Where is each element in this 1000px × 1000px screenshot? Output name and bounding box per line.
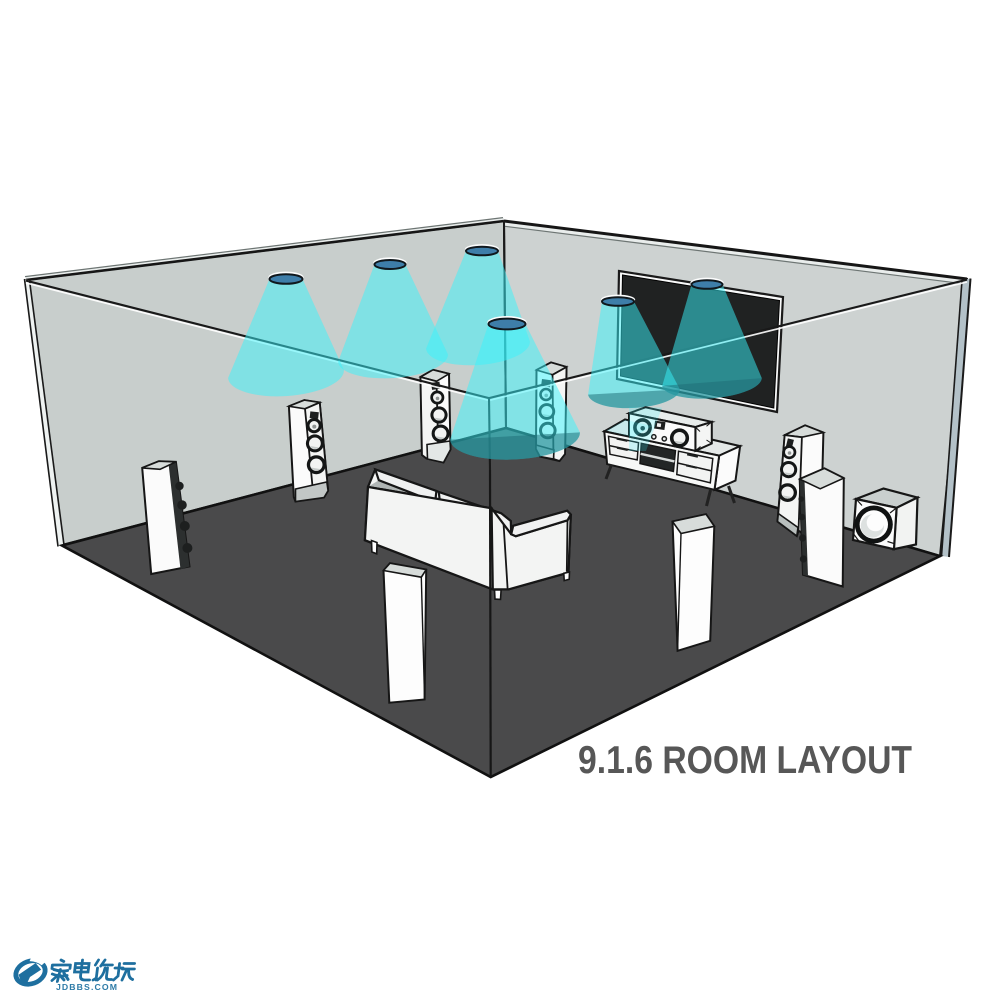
svg-text:9.1.6 ROOM LAYOUT: 9.1.6 ROOM LAYOUT: [578, 739, 912, 782]
svg-text:JDBBS.COM: JDBBS.COM: [56, 982, 118, 992]
